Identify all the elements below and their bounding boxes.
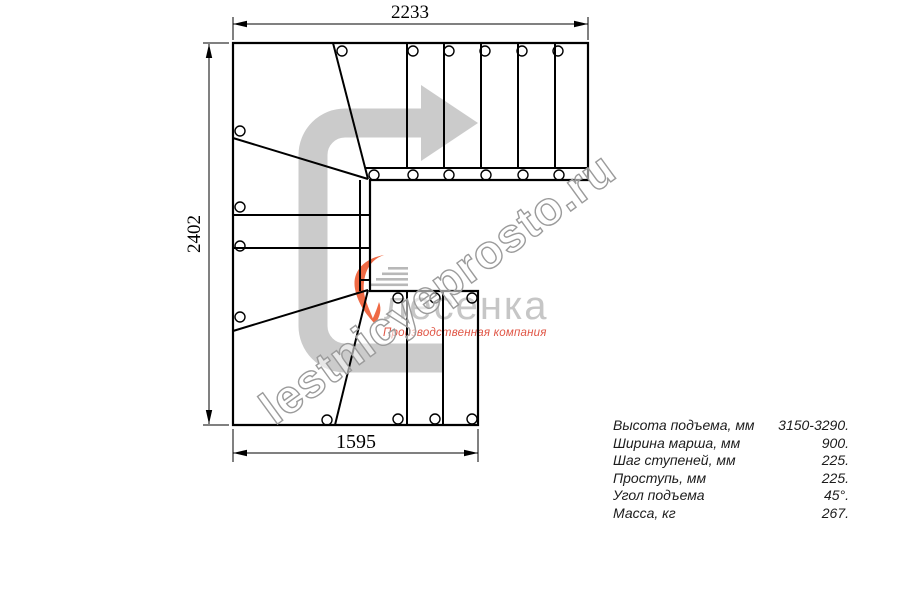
spec-label: Шаг ступеней, мм xyxy=(613,452,736,470)
dim-left-label: 2402 xyxy=(184,215,205,253)
spec-row-height: Высота подъема, мм 3150-3290. xyxy=(613,417,849,435)
spec-row-mass: Масса, кг 267. xyxy=(613,505,849,523)
dim-top-label: 2233 xyxy=(391,2,429,23)
spec-value: 3150-3290. xyxy=(778,417,849,435)
spec-label: Угол подъема xyxy=(613,487,705,505)
spec-row-step-pitch: Шаг ступеней, мм 225. xyxy=(613,452,849,470)
spec-row-angle: Угол подъема 45°. xyxy=(613,487,849,505)
spec-row-tread: Проступь, мм 225. xyxy=(613,470,849,488)
spec-label: Ширина марша, мм xyxy=(613,435,740,453)
spec-value: 900. xyxy=(822,435,849,453)
spec-label: Высота подъема, мм xyxy=(613,417,755,435)
spec-row-flight-width: Ширина марша, мм 900. xyxy=(613,435,849,453)
spec-label: Масса, кг xyxy=(613,505,676,523)
spec-value: 267. xyxy=(822,505,849,523)
spec-value: 225. xyxy=(822,452,849,470)
spec-value: 45°. xyxy=(824,487,849,505)
spec-label: Проступь, мм xyxy=(613,470,706,488)
staircase-drawing-page: лесенка Производственная компания xyxy=(0,0,900,600)
dim-bottom-label: 1595 xyxy=(336,431,376,453)
spec-table: Высота подъема, мм 3150-3290. Ширина мар… xyxy=(613,417,849,522)
spec-value: 225. xyxy=(822,470,849,488)
